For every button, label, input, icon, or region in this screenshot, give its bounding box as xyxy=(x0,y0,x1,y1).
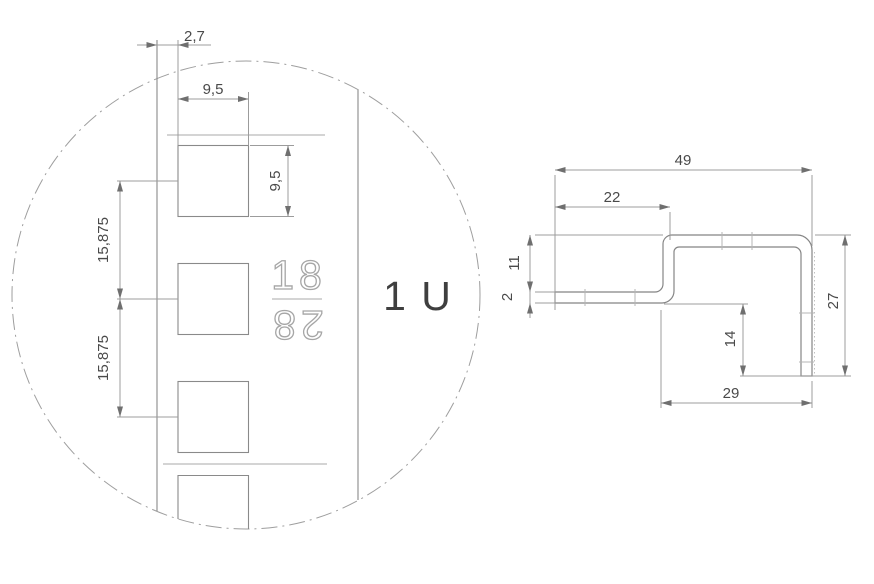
dim-hole-pitch-upper: 15,875 xyxy=(95,181,178,299)
stamp-number-bottom: 28 xyxy=(268,302,324,348)
dim-total-width: 49 xyxy=(555,152,812,310)
bracket-profile-outline xyxy=(555,235,812,376)
dim-thickness-label: 2 xyxy=(499,293,516,301)
dim-total-width-label: 49 xyxy=(675,152,692,169)
rack-unit-label: 1 U xyxy=(383,273,453,319)
technical-drawing: 2,7 9,5 9,5 15,875 15,875 xyxy=(0,0,874,584)
dim-step-height: 11 xyxy=(506,235,663,292)
unit-number-stamp: 18 28 xyxy=(268,252,327,348)
square-hole-4-partial xyxy=(178,476,249,530)
dim-flange-width-label: 22 xyxy=(604,189,621,206)
dim-side-height: 27 xyxy=(740,235,851,376)
square-hole-2 xyxy=(178,264,249,335)
dim-step-height-label: 11 xyxy=(506,255,523,271)
dim-inner-height: 14 xyxy=(664,304,748,376)
dim-edge-offset: 2,7 xyxy=(137,28,211,146)
dim-hole-pitch-upper-label: 15,875 xyxy=(95,217,112,263)
dim-bottom-width-label: 29 xyxy=(723,385,740,402)
dim-hole-height-label: 9,5 xyxy=(267,171,284,192)
dim-side-height-label: 27 xyxy=(825,293,842,310)
stamp-number-top: 18 xyxy=(271,252,327,298)
detail-view-group: 2,7 9,5 9,5 15,875 15,875 xyxy=(12,28,480,529)
dim-hole-width-label: 9,5 xyxy=(203,81,224,98)
dim-hole-height: 9,5 xyxy=(250,146,294,217)
square-hole-1 xyxy=(178,146,249,217)
dim-edge-offset-label: 2,7 xyxy=(184,28,205,45)
dim-hole-pitch-lower-label: 15,875 xyxy=(95,335,112,381)
profile-view-group: 49 22 11 2 14 xyxy=(499,152,851,408)
dim-flange-width: 22 xyxy=(555,189,670,240)
dim-inner-height-label: 14 xyxy=(722,331,739,348)
dim-thickness: 2 xyxy=(499,292,555,318)
dim-hole-width: 9,5 xyxy=(178,81,249,146)
drawing-canvas: 2,7 9,5 9,5 15,875 15,875 xyxy=(0,0,874,584)
dim-hole-pitch-lower: 15,875 xyxy=(95,299,178,417)
dim-bottom-width: 29 xyxy=(661,310,812,408)
square-hole-3 xyxy=(178,382,249,453)
